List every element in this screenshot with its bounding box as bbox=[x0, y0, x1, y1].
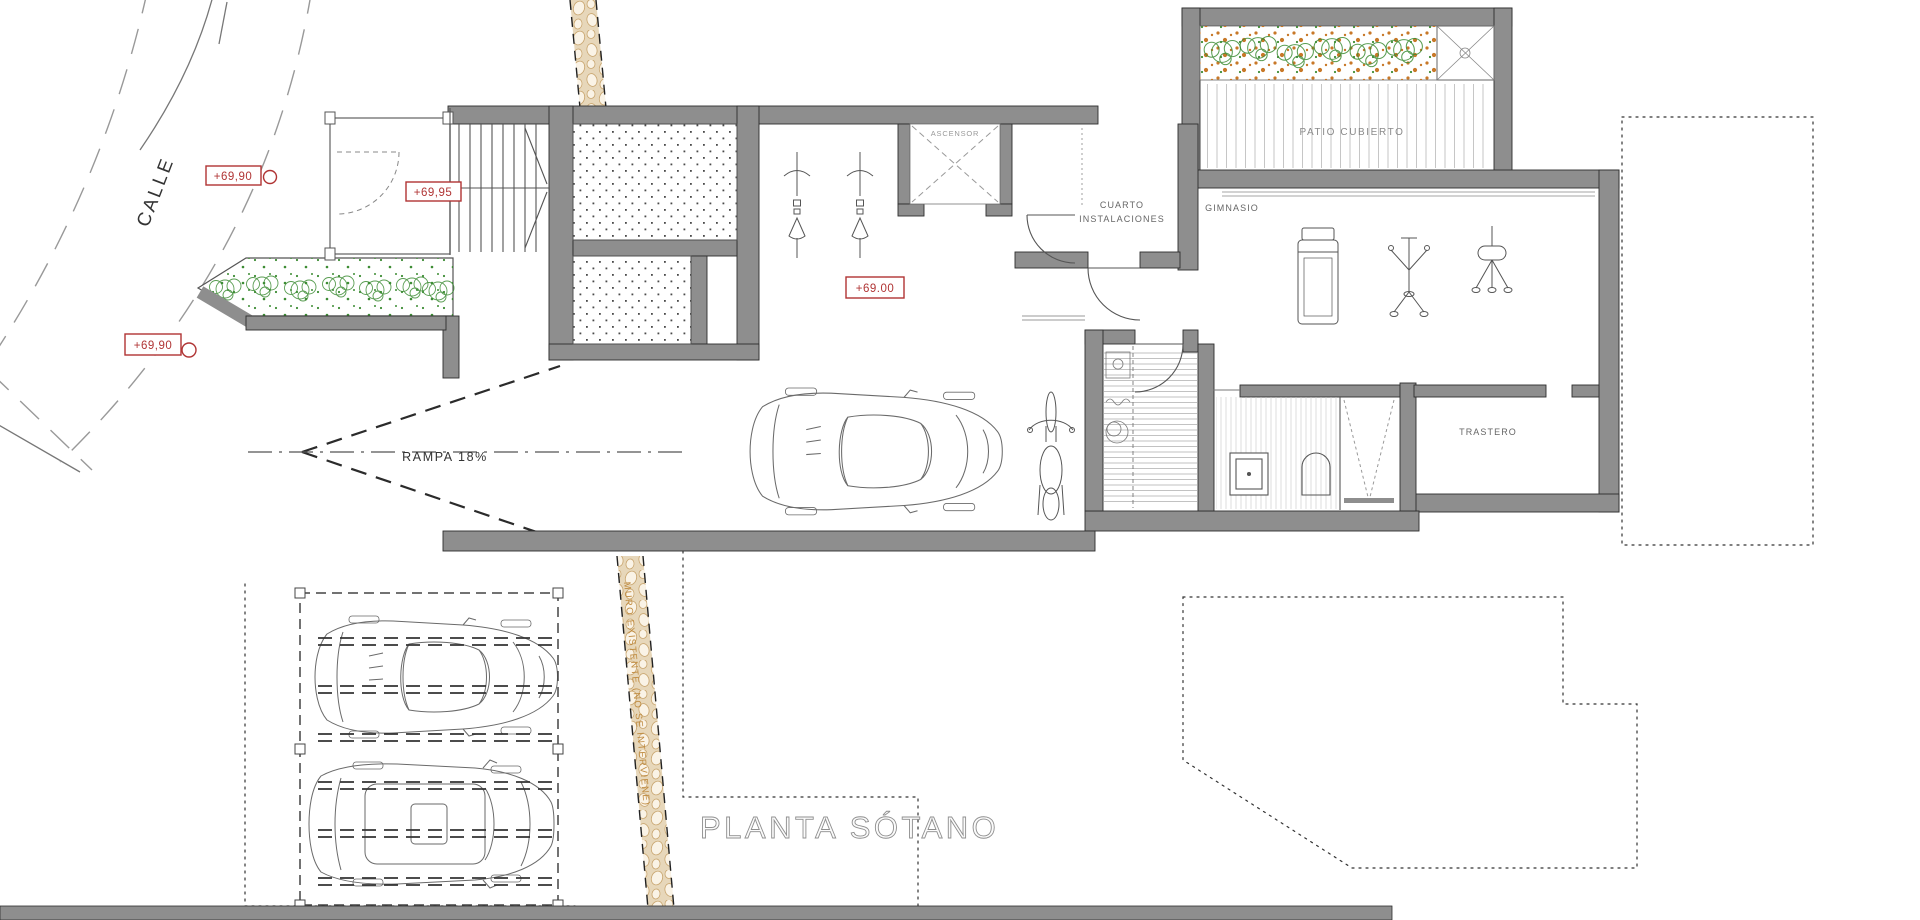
sink-vanity bbox=[1230, 453, 1268, 495]
gym-window-line bbox=[1222, 192, 1595, 196]
planter-left bbox=[198, 258, 454, 324]
weight-rack-icon bbox=[1472, 226, 1512, 293]
shower-slope-lines bbox=[1344, 400, 1394, 497]
stairs bbox=[450, 108, 549, 255]
storage-room-label: TRASTERO bbox=[1459, 427, 1517, 437]
garage-bench-line bbox=[1022, 316, 1085, 320]
pergola-slats bbox=[318, 638, 552, 885]
shower-drain bbox=[1344, 498, 1394, 503]
parked-car-suv bbox=[309, 760, 554, 888]
elevation-street-b: +69,90 bbox=[134, 340, 173, 352]
patio-deck-boards bbox=[1204, 84, 1492, 168]
storage-room: TRASTERO bbox=[1459, 427, 1517, 437]
floor-plan-canvas: CALLE MURO EXISTENTE (NO SE INTERVIENE) … bbox=[0, 0, 1920, 920]
ramp-label: RAMPA 18% bbox=[402, 450, 488, 464]
street-edge-dashed bbox=[0, 0, 148, 430]
sheet-edge-bar bbox=[0, 906, 1392, 920]
basement-floor-plan: CALLE MURO EXISTENTE (NO SE INTERVIENE) … bbox=[0, 0, 1920, 920]
elevation-garage: +69.00 bbox=[856, 283, 895, 295]
utility-room-label-2: INSTALACIONES bbox=[1079, 214, 1165, 224]
elevation-marker-a bbox=[264, 171, 277, 184]
street-name-label: CALLE bbox=[133, 154, 179, 229]
utility-door-swing bbox=[1088, 268, 1140, 320]
street-curb bbox=[140, 0, 215, 150]
street-edge-lower bbox=[0, 372, 92, 470]
boundary-line-center bbox=[683, 551, 918, 920]
parking-bay-outline bbox=[300, 593, 558, 905]
boundary-polygon-bottom-right bbox=[1183, 597, 1637, 868]
treadmill-icon bbox=[1298, 228, 1338, 324]
elevator-label: ASCENSOR bbox=[931, 129, 980, 138]
porch-door-swing bbox=[337, 152, 399, 214]
parking-bay bbox=[295, 588, 563, 910]
garage-car bbox=[750, 388, 1002, 515]
bathroom-suite bbox=[1104, 344, 1394, 510]
motorcycle-icon bbox=[1028, 392, 1075, 520]
sauna-benches bbox=[1104, 348, 1197, 506]
ceiling-fixture-1 bbox=[784, 152, 810, 258]
utility-room: CUARTO INSTALACIONES bbox=[1027, 128, 1165, 320]
elevation-street-a: +69,90 bbox=[214, 171, 253, 183]
elevation-marker-b bbox=[182, 343, 196, 357]
patio-label: PATIO CUBIERTO bbox=[1299, 127, 1404, 138]
parked-car-sport bbox=[315, 616, 558, 738]
exercise-machine-icon bbox=[1389, 238, 1430, 317]
site-boundary-dotted bbox=[245, 117, 1813, 920]
storage-room-1 bbox=[573, 124, 737, 240]
ramp: RAMPA 18% bbox=[248, 366, 688, 540]
street: CALLE bbox=[0, 0, 312, 472]
ceiling-fixture-2 bbox=[847, 152, 873, 258]
elevator: ASCENSOR bbox=[910, 124, 1000, 204]
elevation-entry: +69,95 bbox=[414, 187, 453, 199]
plan-title: PLANTA SÓTANO bbox=[700, 810, 999, 845]
gym-label: GIMNASIO bbox=[1205, 203, 1259, 213]
storage-dotted-rooms bbox=[573, 124, 737, 344]
storage-room-2 bbox=[573, 256, 691, 344]
utility-room-label-1: CUARTO bbox=[1100, 200, 1144, 210]
ramp-edge-upper bbox=[302, 366, 560, 452]
boundary-rect-right bbox=[1622, 117, 1813, 545]
street-tick bbox=[219, 2, 227, 44]
ramp-edge-lower bbox=[302, 452, 560, 540]
